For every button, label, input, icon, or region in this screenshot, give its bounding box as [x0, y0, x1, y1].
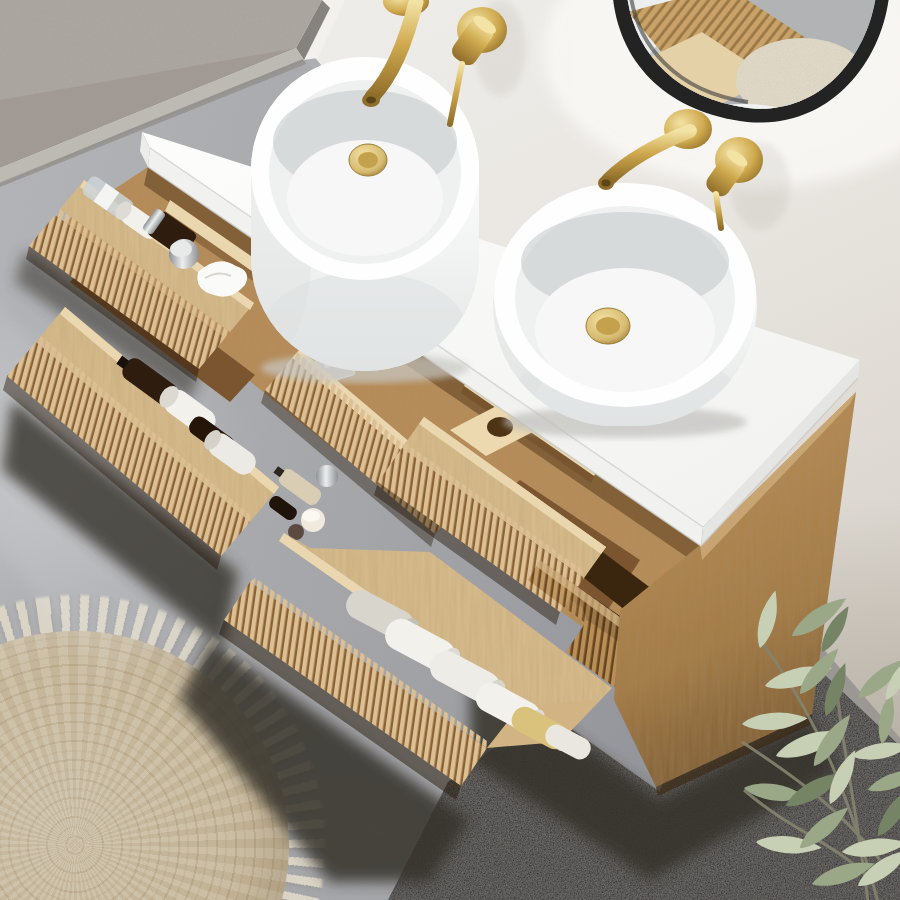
chrome-jar-lid	[170, 241, 192, 257]
chrome-mini-jar	[316, 465, 338, 487]
bathroom-scene	[0, 0, 900, 900]
scene-artwork	[0, 0, 900, 900]
